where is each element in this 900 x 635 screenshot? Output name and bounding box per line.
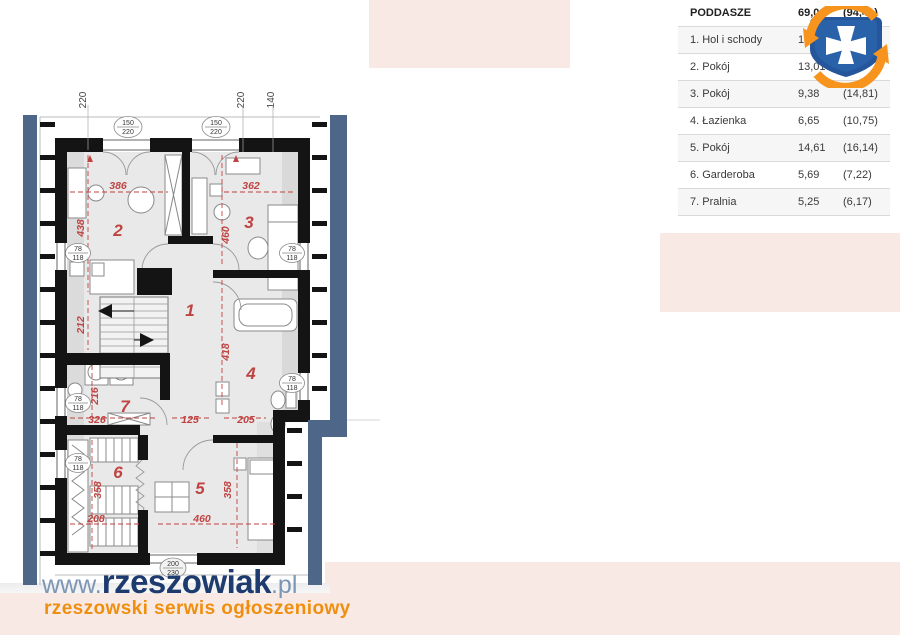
svg-text:220: 220	[122, 129, 134, 136]
svg-text:150: 150	[122, 120, 134, 127]
dim-358-room5: 358	[222, 481, 234, 499]
svg-text:118: 118	[72, 255, 83, 262]
table-row: 6. Garderoba 5,69 (7,22)	[678, 162, 890, 189]
row-gross: (10,75)	[843, 115, 890, 127]
room-1-number: 1	[185, 301, 194, 320]
dim-220-left: 220	[78, 91, 89, 108]
room-7-number: 7	[120, 397, 131, 416]
room-6-number: 6	[113, 463, 123, 482]
row-gross: (14,81)	[843, 88, 890, 100]
dim-140: 140	[266, 91, 277, 108]
window-label-78-118-room3: 78 118	[280, 244, 305, 263]
dim-220-right: 220	[236, 91, 247, 108]
window-label-150-220-a: 150 220	[114, 117, 142, 138]
svg-text:220: 220	[210, 129, 222, 136]
pink-block-top	[369, 0, 570, 68]
row-label: 3. Pokój	[690, 88, 798, 100]
svg-text:118: 118	[72, 465, 83, 472]
row-label: 4. Łazienka	[690, 115, 798, 127]
dim-418: 418	[220, 343, 232, 362]
dim-386: 386	[109, 180, 127, 192]
room-4-number: 4	[245, 364, 256, 383]
dim-362: 362	[242, 180, 260, 192]
room-3-number: 3	[244, 213, 254, 232]
top-dimensions: 220 220 140	[78, 91, 277, 108]
window-label-78-118-room4: 78 118	[280, 374, 305, 393]
svg-text:118: 118	[286, 385, 297, 392]
dim-438: 438	[75, 219, 87, 238]
table-row: 4. Łazienka 6,65 (10,75)	[678, 108, 890, 135]
table-header-title: PODDASZE	[690, 7, 798, 19]
window-label-78-118-room7: 78 118	[66, 394, 91, 413]
brand-name: rzeszowiak	[102, 563, 271, 601]
row-area: 9,38	[798, 88, 843, 100]
footer-brand: www.rzeszowiak.pl	[42, 563, 297, 601]
pink-block-bottom-right	[325, 562, 900, 593]
dim-460-room3: 460	[220, 226, 232, 245]
stairs	[98, 297, 168, 378]
svg-text:150: 150	[210, 120, 222, 127]
window-label-150-220-b: 150 220	[202, 117, 230, 138]
svg-text:78: 78	[288, 376, 296, 383]
dim-212: 212	[75, 316, 87, 335]
shield-icon	[810, 17, 882, 77]
brand-tld: .pl	[271, 571, 297, 600]
svg-text:118: 118	[286, 255, 297, 262]
svg-text:118: 118	[72, 405, 83, 412]
window-label-78-118-room6: 78 118	[66, 454, 91, 473]
footer-tagline: rzeszowski serwis ogłoszeniowy	[44, 598, 351, 620]
dim-326: 326	[88, 414, 106, 426]
dim-205: 205	[236, 414, 255, 426]
row-gross: (7,22)	[843, 169, 890, 181]
row-label: 6. Garderoba	[690, 169, 798, 181]
dim-208: 208	[86, 513, 105, 525]
svg-text:78: 78	[288, 246, 296, 253]
dim-358-room6: 358	[92, 481, 104, 499]
room-5-number: 5	[195, 479, 205, 498]
row-gross: (16,14)	[843, 142, 890, 154]
row-area: 5,69	[798, 169, 843, 181]
table-row: 5. Pokój 14,61 (16,14)	[678, 135, 890, 162]
row-label: 5. Pokój	[690, 142, 798, 154]
row-area: 5,25	[798, 196, 843, 208]
row-label: 7. Pralnia	[690, 196, 798, 208]
room-2-number: 2	[112, 221, 123, 240]
table-row: 7. Pralnia 5,25 (6,17)	[678, 189, 890, 216]
svg-text:78: 78	[74, 396, 82, 403]
row-gross: (6,17)	[843, 196, 890, 208]
svg-text:78: 78	[74, 246, 82, 253]
svg-text:78: 78	[74, 456, 82, 463]
floor-plan: 220 220 140 1 2 3 4 5 6 7 386 362 438 46…	[0, 0, 380, 635]
row-area: 14,61	[798, 142, 843, 154]
rzeszowiak-logo-badge	[797, 6, 895, 88]
dim-460-room5: 460	[192, 513, 211, 525]
pink-block-right	[660, 233, 900, 312]
brand-www: www.	[42, 571, 102, 600]
row-label: 1. Hol i schody	[690, 34, 798, 46]
dim-125: 125	[181, 414, 199, 426]
row-label: 2. Pokój	[690, 61, 798, 73]
window-label-78-118-room2: 78 118	[66, 244, 91, 263]
row-area: 6,65	[798, 115, 843, 127]
